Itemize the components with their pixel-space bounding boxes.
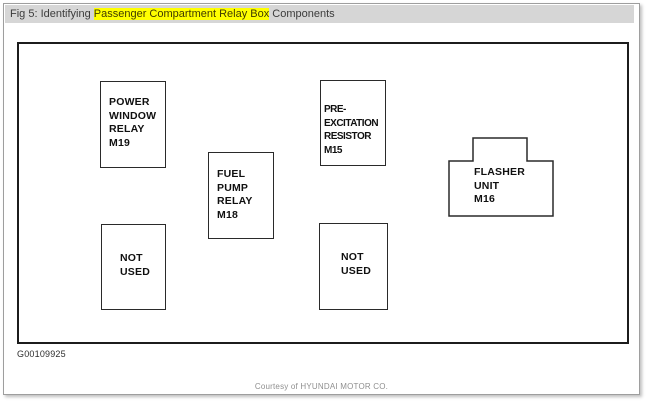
component-label: RESISTOR [324,130,385,144]
caption-suffix: Components [269,8,334,20]
component-box-pre-excitation-resistor: PRE- EXCITATION RESISTOR M15 [320,80,386,166]
component-label: NOT [341,251,387,265]
component-box-power-window-relay: POWER WINDOW RELAY M19 [100,81,166,168]
manual-page: Fig 5: Identifying Passenger Compartment… [0,0,650,407]
component-label: EXCITATION [324,117,385,131]
component-label: UNIT [474,180,525,194]
component-label: RELAY [217,195,273,209]
figure-id: G00109925 [17,349,66,359]
component-box-flasher-unit: FLASHER UNIT M16 [448,137,554,217]
component-label: USED [341,265,387,279]
component-label: WINDOW [109,110,165,124]
component-box-not-used-left: NOT USED [101,224,166,310]
component-label: POWER [109,96,165,110]
courtesy-credit: Courtesy of HYUNDAI MOTOR CO. [4,382,639,391]
component-label: PRE- [324,103,385,117]
caption-highlighted-term: Passenger Compartment Relay Box [94,8,269,20]
component-label: USED [120,266,165,280]
component-label: M19 [109,137,165,151]
figure-frame: Fig 5: Identifying Passenger Compartment… [3,3,640,395]
figure-caption-bar: Fig 5: Identifying Passenger Compartment… [5,5,634,23]
component-label: NOT [120,252,165,266]
component-label: M18 [217,209,273,223]
component-box-fuel-pump-relay: FUEL PUMP RELAY M18 [208,152,274,239]
component-label: M15 [324,144,385,158]
component-label: FLASHER [474,166,525,180]
component-label: M16 [474,193,525,207]
flasher-unit-label: FLASHER UNIT M16 [474,166,525,207]
component-label: PUMP [217,182,273,196]
component-label: RELAY [109,123,165,137]
component-box-not-used-right: NOT USED [319,223,388,310]
caption-prefix: Fig 5: Identifying [10,8,94,20]
component-label: FUEL [217,168,273,182]
